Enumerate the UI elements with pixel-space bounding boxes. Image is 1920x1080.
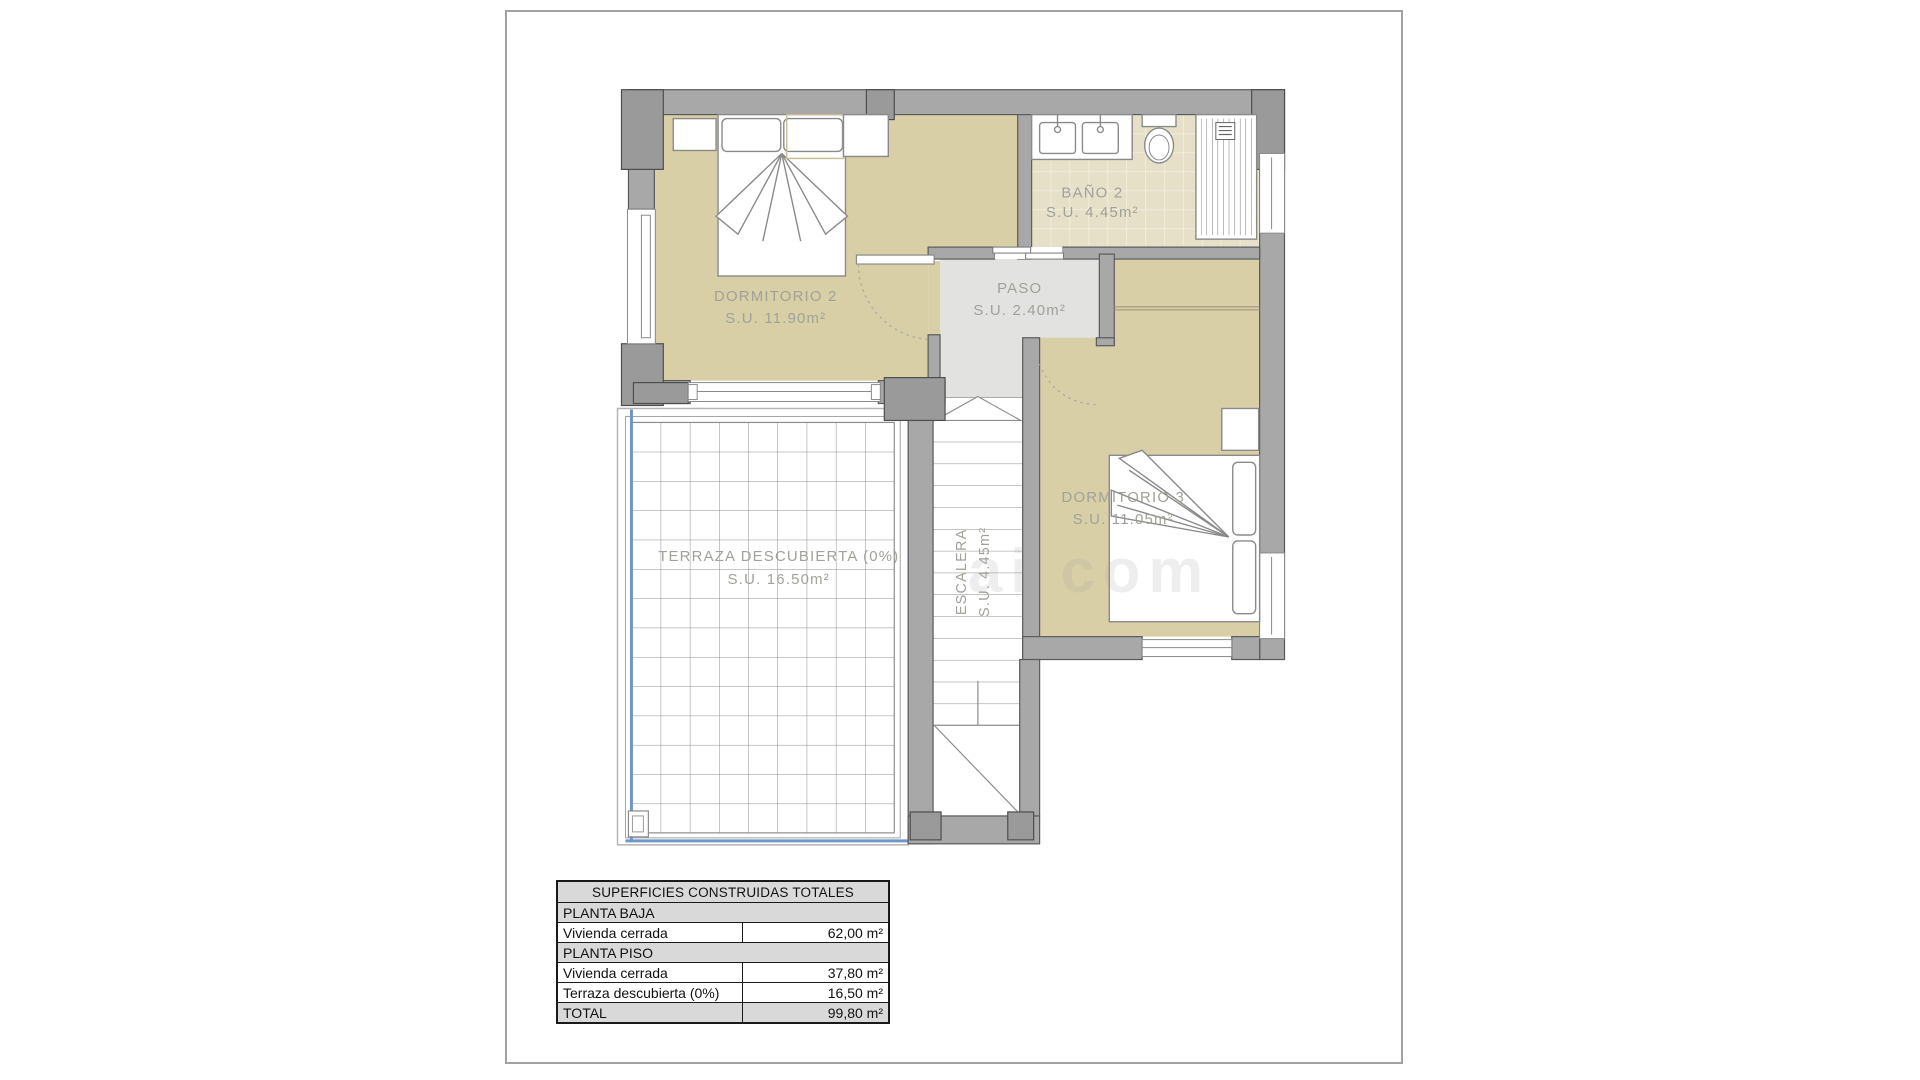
- faucet-icon: [1055, 127, 1061, 133]
- row-label: Vivienda cerrada: [558, 925, 742, 941]
- shower-icon: [1196, 115, 1257, 240]
- pillar-paso-bottom-left: [884, 378, 945, 421]
- total-value: 99,80 m²: [742, 1003, 888, 1022]
- pillar-stairs-bl: [910, 812, 941, 840]
- label-bano2-name: BAÑO 2: [1061, 184, 1123, 201]
- label-dormitorio2-name: DORMITORIO 2: [714, 288, 837, 305]
- label-paso-area: S.U. 2.40m²: [973, 302, 1066, 319]
- door-bano-sliding: [993, 247, 1064, 259]
- table-section-planta-piso: PLANTA PISO: [558, 942, 888, 962]
- terraza-grid: [631, 422, 894, 832]
- terraza-area: [618, 408, 909, 844]
- window-dorm2-left: [627, 209, 655, 343]
- bed-dormitorio2: [716, 115, 847, 276]
- sink-counter: [1032, 115, 1133, 160]
- total-label: TOTAL: [558, 1005, 742, 1021]
- wall-top: [628, 90, 1284, 115]
- label-paso-name: PASO: [997, 280, 1042, 297]
- wall-bano-bottom: [1063, 247, 1260, 259]
- areas-table: SUPERFICIES CONSTRUIDAS TOTALES PLANTA B…: [556, 880, 890, 1024]
- label-dormitorio2-area: S.U. 11.90m²: [725, 310, 826, 327]
- wall-dorm3-bottom-right: [1232, 637, 1260, 660]
- terraza-corner-detail: [628, 811, 648, 837]
- nightstand-dorm2-left: [673, 119, 716, 151]
- dormitorio2-door-gap: [928, 261, 940, 335]
- closet-dorm2: [843, 115, 888, 157]
- row-value: 37,80 m²: [742, 963, 888, 982]
- table-total-row: TOTAL 99,80 m²: [558, 1002, 888, 1022]
- label-bano2-area: S.U. 4.45m²: [1046, 204, 1139, 221]
- pillar-terraza-top-left: [633, 383, 688, 404]
- table-row: Vivienda cerrada 37,80 m²: [558, 962, 888, 982]
- wall-dorm2-bano-divider: [1018, 115, 1032, 259]
- window-dorm3-right: [1260, 553, 1285, 639]
- page: ai com DORMITORIO 2 S.U. 11.90m² BAÑO 2 …: [0, 0, 1920, 1080]
- row-label: Terraza descubierta (0%): [558, 985, 742, 1001]
- section-header: PLANTA BAJA: [558, 905, 888, 921]
- label-dormitorio3-name: DORMITORIO 3: [1062, 489, 1185, 506]
- table-row: Terraza descubierta (0%) 16,50 m²: [558, 982, 888, 1002]
- toilet-icon: [1142, 115, 1176, 163]
- window-dorm2-terraza: [688, 383, 880, 402]
- table-row: Vivienda cerrada 62,00 m²: [558, 922, 888, 942]
- wall-dorm3-bottom-left: [1023, 637, 1142, 660]
- label-terraza-area: S.U. 16.50m²: [728, 571, 830, 588]
- section-header: PLANTA PISO: [558, 945, 888, 961]
- wall-corner-stub: [1096, 338, 1114, 346]
- label-escalera-name: ESCALERA: [954, 529, 970, 616]
- table-section-planta-baja: PLANTA BAJA: [558, 902, 888, 922]
- dormitorio3-door-gap: [1040, 338, 1097, 345]
- pillar-stairs-br: [1008, 812, 1034, 840]
- wall-paso-top-left: [928, 247, 995, 259]
- pillar-top-left: [621, 90, 663, 170]
- wall-stairs-dorm3-divider: [1023, 338, 1040, 660]
- wall-paso-left: [928, 335, 940, 384]
- label-dormitorio3-area: S.U. 11.05m²: [1073, 511, 1174, 528]
- window-dorm3-bottom: [1142, 640, 1232, 657]
- window-bano-right: [1260, 153, 1285, 233]
- row-label: Vivienda cerrada: [558, 965, 742, 981]
- wall-paso-right: [1099, 254, 1114, 344]
- row-value: 16,50 m²: [742, 983, 888, 1002]
- wall-stairs-right: [1020, 660, 1040, 816]
- label-escalera-area: S.U. 4.45m²: [977, 527, 993, 617]
- table-title: SUPERFICIES CONSTRUIDAS TOTALES: [592, 885, 854, 900]
- watermark: ai com: [968, 537, 1211, 606]
- faucet-icon: [1097, 127, 1103, 133]
- wall-stairs-left: [908, 410, 933, 843]
- table-title-row: SUPERFICIES CONSTRUIDAS TOTALES: [558, 882, 888, 902]
- nightstand-dorm3: [1222, 408, 1259, 450]
- label-terraza-name: TERRAZA DESCUBIERTA (0%): [658, 548, 899, 565]
- row-value: 62,00 m²: [742, 923, 888, 942]
